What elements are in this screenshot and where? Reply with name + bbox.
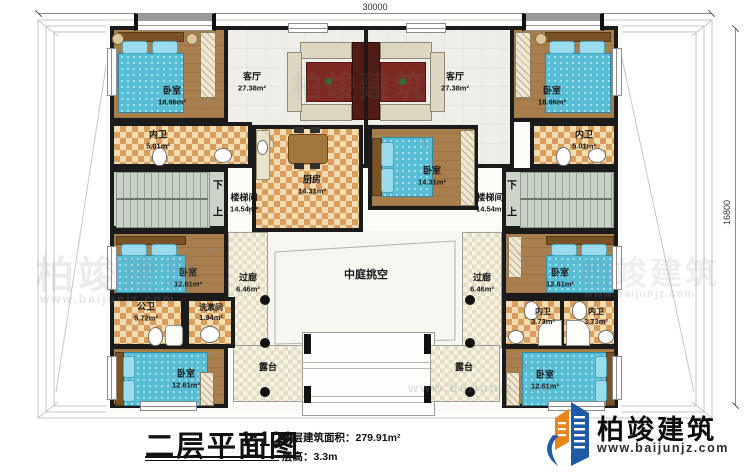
room-name: 楼梯间 [230, 192, 258, 204]
room-area: 18.96m² [158, 97, 186, 107]
room-area: 18.96m² [538, 97, 566, 107]
pillow [595, 380, 607, 402]
room-name: 公卫 [134, 301, 158, 313]
column [465, 387, 475, 397]
room-name: 厨房 [298, 174, 326, 186]
room-label-living-left: 客厅 27.38m² [238, 71, 266, 92]
column [260, 338, 270, 348]
sofa [300, 104, 352, 121]
room-name: 客厅 [441, 71, 469, 83]
title-underline [145, 460, 279, 461]
chair [310, 163, 320, 169]
room-area: 3.73m² [531, 317, 555, 327]
floor-height-label: 层高： [282, 451, 314, 463]
room-area: 12.61m² [531, 381, 559, 391]
window [288, 23, 328, 33]
window [612, 356, 622, 400]
window [107, 48, 117, 96]
room-name: 卧室 [174, 267, 202, 279]
room-area: 6.46m² [236, 284, 260, 294]
room-area: 12.61m² [546, 279, 574, 289]
room-label-atrium: 中庭挑空 [344, 268, 388, 282]
room-label-bath-bottom-right-1: 内卫 3.73m² [531, 307, 555, 327]
room-area: 27.38m² [441, 83, 469, 93]
tv-cabinet [352, 42, 365, 120]
brand-logo-icon [545, 400, 595, 470]
room-name: 过廊 [236, 272, 260, 284]
window [612, 48, 622, 96]
pillow [579, 41, 605, 54]
room-name: 客厅 [238, 71, 266, 83]
toilet [556, 147, 571, 166]
window [107, 356, 117, 400]
pillow [595, 356, 607, 378]
room-area: 14.54m² [476, 204, 504, 214]
room-name: 过廊 [470, 272, 494, 284]
chair [294, 127, 304, 133]
wardrobe [506, 372, 520, 406]
room-label-living-right: 客厅 27.38m² [441, 71, 469, 92]
room-name: 洗漱间 [199, 303, 223, 313]
pillow [123, 380, 135, 402]
stair-up-label-right: 上 [507, 204, 517, 219]
room-label-bedroom-bottom-left-1: 卧室 12.61m² [174, 267, 202, 288]
window [107, 246, 117, 290]
room-area: 12.61m² [174, 279, 202, 289]
room-label-bedroom-bottom-right-2: 卧室 12.61m² [531, 369, 559, 390]
floor-area-label: 本层建筑面积： [282, 432, 356, 444]
room-label-bedroom-top-left: 卧室 18.96m² [158, 85, 186, 106]
brand-url: www.baijunjz.com [597, 441, 729, 455]
room-area: 12.61m² [172, 380, 200, 390]
title-underline [145, 456, 279, 458]
room-name: 卧室 [531, 369, 559, 381]
pillow [381, 168, 394, 193]
room-label-corridor-left: 过廊 6.46m² [236, 272, 260, 293]
room-area: 27.38m² [238, 83, 266, 93]
room-bath-top-left [110, 122, 252, 168]
column [260, 387, 270, 397]
room-label-washroom: 洗漱间 1.94m² [199, 303, 223, 323]
room-name: 卧室 [418, 165, 446, 177]
plant [325, 78, 332, 85]
sofa [287, 52, 302, 112]
stair-down-label-right: 下 [507, 177, 517, 192]
wardrobe [200, 32, 216, 98]
room-name: 卧室 [172, 368, 200, 380]
sink [214, 148, 232, 163]
stair-up-label-left: 上 [213, 204, 223, 219]
room-area: 1.94m² [199, 313, 223, 323]
column [465, 295, 475, 305]
chair [294, 163, 304, 169]
column [260, 295, 270, 305]
shower [165, 325, 183, 346]
room-label-kitchen: 厨房 14.31m² [298, 174, 326, 195]
wardrobe [515, 32, 531, 98]
room-name: 露台 [455, 362, 473, 374]
room-name: 中庭挑空 [344, 268, 388, 282]
sink [598, 330, 614, 344]
room-label-terrace-left: 露台 [259, 362, 277, 374]
room-label-bath-top-right: 内卫 5.01m² [572, 129, 596, 150]
sofa [380, 104, 432, 121]
stair-down-label-left: 下 [213, 177, 223, 192]
nightstand-lamp [112, 33, 124, 45]
room-area: 3.73m² [584, 317, 608, 327]
floor-plan-page: 卧室 18.96m² 客厅 27.38m² 客厅 27.38m² 卧室 18.9… [0, 0, 750, 473]
window [140, 401, 197, 411]
sink [508, 330, 524, 344]
room-label-bedroom-bottom-right-1: 卧室 12.61m² [546, 267, 574, 288]
room-label-bedroom-bottom-left-2: 卧室 12.61m² [172, 368, 200, 389]
room-label-bedroom-middle: 卧室 14.31m² [418, 165, 446, 186]
dimension-top-value: 30000 [340, 2, 410, 12]
entry-canopy [302, 332, 435, 416]
dimension-line-right [735, 28, 736, 406]
window [406, 23, 446, 33]
room-area: 5.01m² [572, 141, 596, 151]
room-label-bath-bottom-right-2: 内卫 3.73m² [584, 307, 608, 327]
floor-area-line: 本层建筑面积：279.91m² [282, 430, 400, 445]
bay-window [134, 13, 216, 31]
column [465, 338, 475, 348]
room-name: 楼梯间 [476, 192, 504, 204]
room-area: 14.31m² [418, 177, 446, 187]
tv-cabinet [367, 42, 380, 120]
room-label-stairwell-left: 楼梯间 14.54m² [230, 192, 258, 213]
dimension-right-value: 16800 [722, 200, 732, 225]
room-name: 露台 [259, 362, 277, 374]
room-label-public-bath: 公卫 5.72m² [134, 301, 158, 322]
room-label-bedroom-top-right: 卧室 18.96m² [538, 85, 566, 106]
floor-height-line: 层高：3.3m [282, 449, 337, 464]
wardrobe [460, 130, 475, 206]
room-area: 14.54m² [230, 204, 258, 214]
room-label-terrace-right: 露台 [455, 362, 473, 374]
pillow [549, 41, 575, 54]
room-area: 5.01m² [146, 141, 170, 151]
room-area: 14.31m² [298, 186, 326, 196]
pillow [151, 244, 177, 256]
floor-area-value: 279.91m² [356, 432, 401, 444]
pillow [551, 244, 577, 256]
plant [399, 78, 406, 85]
nightstand-lamp [186, 33, 198, 45]
room-name: 内卫 [572, 129, 596, 141]
room-name: 卧室 [158, 85, 186, 97]
room-name: 内卫 [146, 129, 170, 141]
room-name: 内卫 [531, 307, 555, 317]
room-name: 卧室 [546, 267, 574, 279]
room-label-bath-top-left: 内卫 5.01m² [146, 129, 170, 150]
stair-rail [116, 198, 208, 200]
pillow [152, 41, 178, 54]
pillow [122, 41, 148, 54]
pillow [123, 356, 135, 378]
pillow [121, 244, 147, 256]
room-label-stairwell-right: 楼梯间 14.54m² [476, 192, 504, 213]
room-label-corridor-right: 过廊 6.46m² [470, 272, 494, 293]
stair-treads-left [116, 172, 210, 228]
room-area: 5.72m² [134, 313, 158, 323]
toilet [148, 327, 163, 346]
pillow [381, 142, 394, 167]
room-name: 内卫 [584, 307, 608, 317]
stair-treads-right [520, 172, 614, 228]
pillow [581, 244, 607, 256]
window [612, 246, 622, 290]
stair-rail [520, 198, 612, 200]
room-name: 卧室 [538, 85, 566, 97]
bay-window [522, 13, 604, 31]
room-area: 6.46m² [470, 284, 494, 294]
sofa [300, 42, 352, 59]
chair [310, 127, 320, 133]
sofa [380, 42, 432, 59]
wardrobe [200, 372, 214, 406]
dining-table [288, 134, 328, 164]
sink [200, 326, 220, 343]
nightstand-lamp [535, 33, 547, 45]
floor-height-value: 3.3m [314, 451, 338, 463]
